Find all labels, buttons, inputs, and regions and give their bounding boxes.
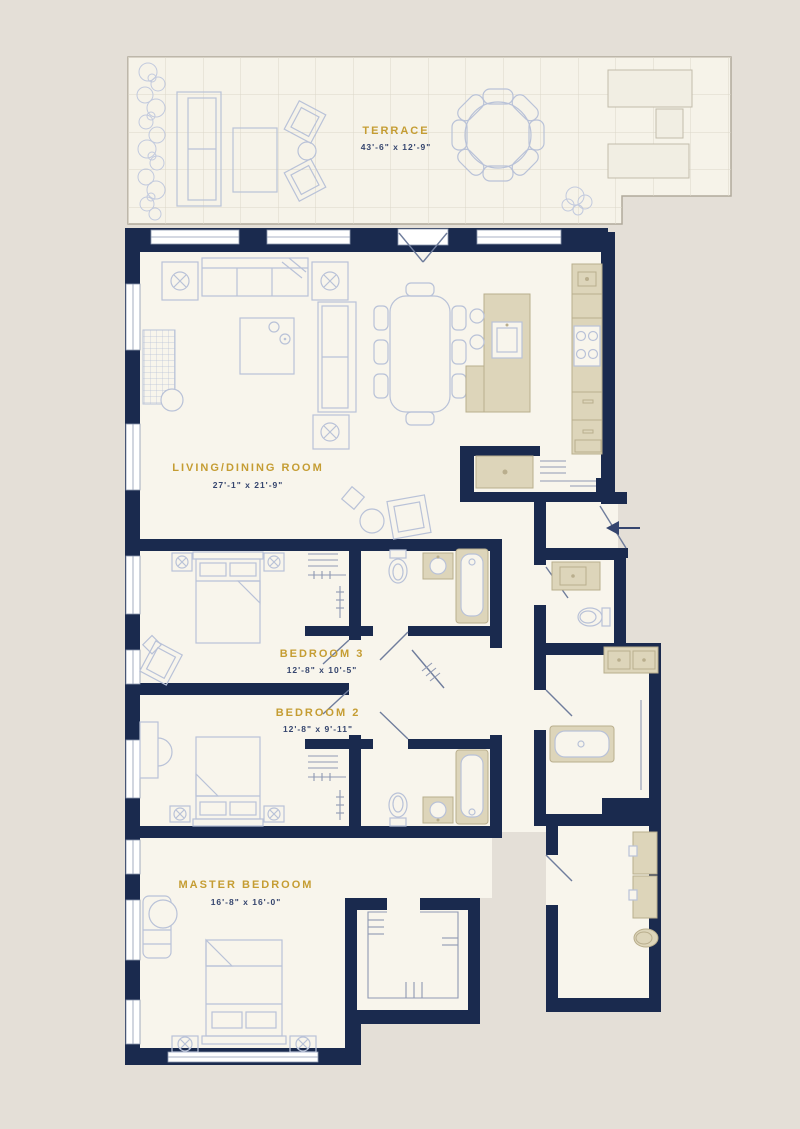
sink <box>423 797 453 823</box>
kitchen-counter <box>572 264 602 454</box>
terrace-label: TERRACE <box>362 125 429 137</box>
toilet <box>634 929 658 947</box>
vanity-sink <box>552 562 600 590</box>
toilet <box>578 608 610 626</box>
double-vanity <box>604 647 658 673</box>
bedroom-3-label: BEDROOM 3 <box>280 648 365 660</box>
bathtub <box>550 726 614 762</box>
floor-plan-canvas: TERRACE 43'-6" x 12'-9" <box>0 0 800 1129</box>
master-bedroom-label: MASTER BEDROOM <box>179 879 314 891</box>
bathtub <box>456 549 488 623</box>
master-bedroom-dims: 16'-8" x 16'-0" <box>211 897 282 907</box>
terrace-dims: 43'-6" x 12'-9" <box>361 142 432 152</box>
toilet <box>389 793 407 826</box>
sink <box>423 553 453 579</box>
bathtub <box>456 750 488 824</box>
cooktop <box>574 326 600 366</box>
bedroom-3-dims: 12'-8" x 10'-5" <box>287 665 358 675</box>
window <box>168 1052 318 1062</box>
bedroom-2-dims: 12'-8" x 9'-11" <box>283 724 353 734</box>
living-dining-label: LIVING/DINING ROOM <box>172 462 324 474</box>
living-dining-dims: 27'-1" x 21'-9" <box>213 480 284 490</box>
bedroom-2-label: BEDROOM 2 <box>276 707 361 719</box>
toilet <box>389 550 407 583</box>
